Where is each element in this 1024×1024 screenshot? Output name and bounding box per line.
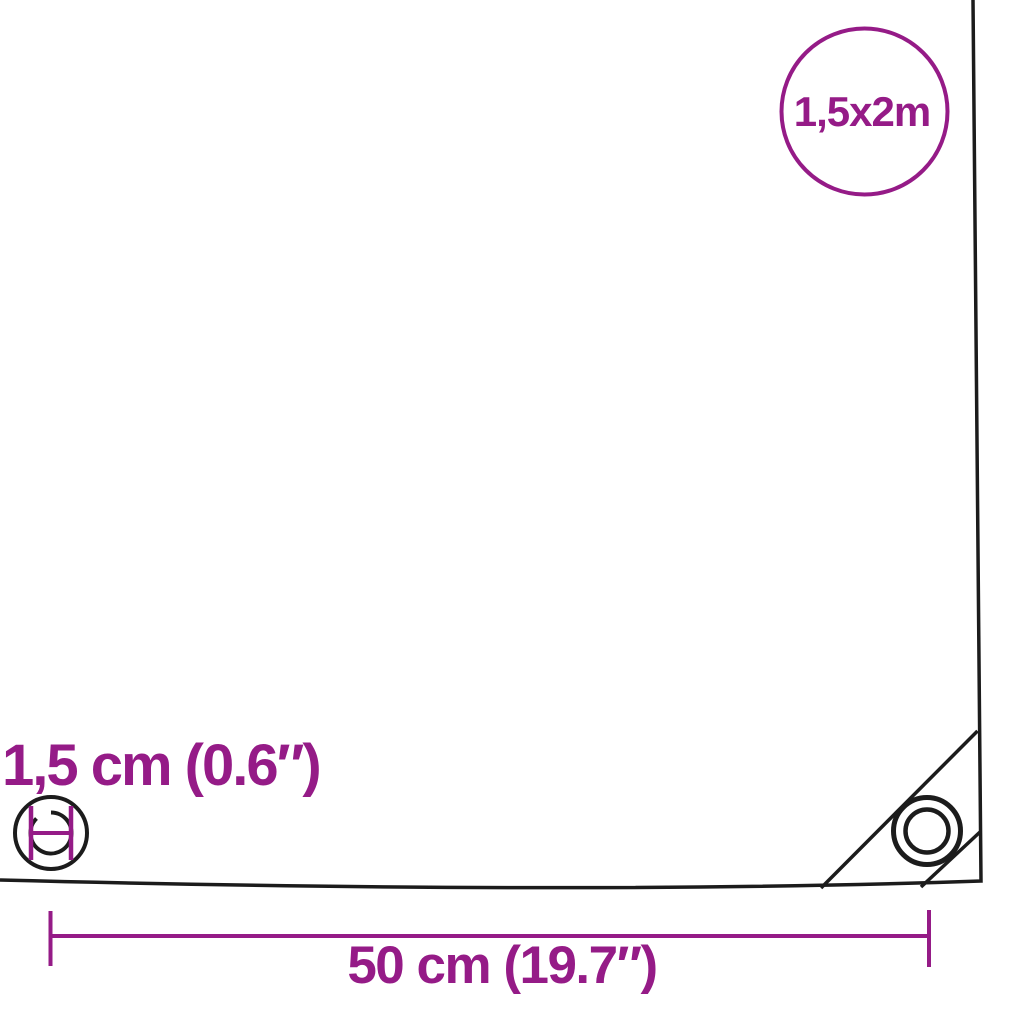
product-dimension-diagram: 1,5x2m 1,5 cm (0.6″) 50 cm (19.7″): [0, 0, 1024, 1024]
eyelet-diameter-label: 1,5 cm (0.6″): [2, 733, 320, 798]
size-badge-label: 1,5x2m: [794, 88, 930, 135]
spacing-label: 50 cm (19.7″): [347, 936, 656, 995]
corner-seam-inner: [921, 832, 980, 887]
diagram-svg: 1,5x2m 1,5 cm (0.6″) 50 cm (19.7″): [0, 0, 1024, 1024]
corner-eyelet-ring-inner: [906, 810, 949, 853]
